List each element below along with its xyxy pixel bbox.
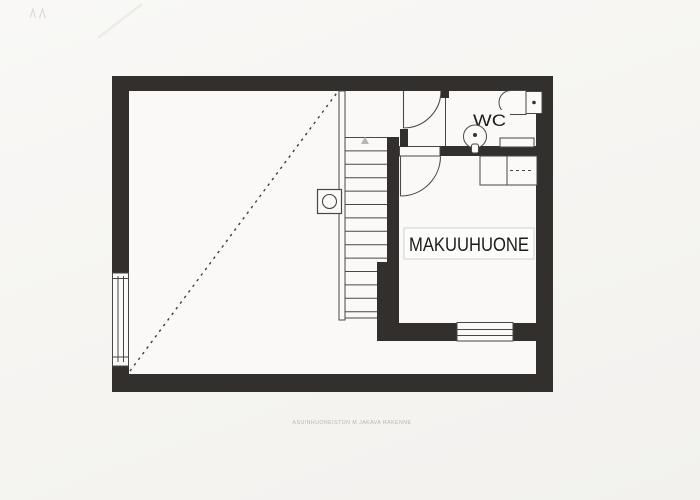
window-icon-left — [113, 273, 129, 366]
scan-pencil-marks — [30, 9, 45, 18]
wall-bottom — [112, 374, 553, 392]
bedroom-room-label: MAKUUHUONE — [409, 235, 529, 256]
bedroom-door-threshold — [400, 147, 441, 157]
wc-door-jamb — [441, 91, 449, 98]
scan-crease-artifact — [98, 4, 142, 38]
wall-left-upper — [112, 76, 129, 273]
wall-right — [536, 76, 553, 392]
floorplan-drawing: WC MAKUUHUONE ASUINHUONEISTON — [0, 0, 700, 500]
footer-caption: ASUINHUONEISTON M JAKAVA RAKENNE — [293, 420, 412, 426]
wc-cabinet — [500, 138, 534, 147]
wardrobe-icon — [480, 156, 537, 185]
wall-top — [112, 76, 553, 91]
window-icon-bedroom — [457, 323, 513, 342]
wall-stub — [400, 129, 408, 147]
wall-left-lower — [112, 366, 129, 392]
flue-icon — [318, 190, 342, 214]
scanned-floorplan-page: WC MAKUUHUONE ASUINHUONEISTON — [0, 0, 700, 500]
